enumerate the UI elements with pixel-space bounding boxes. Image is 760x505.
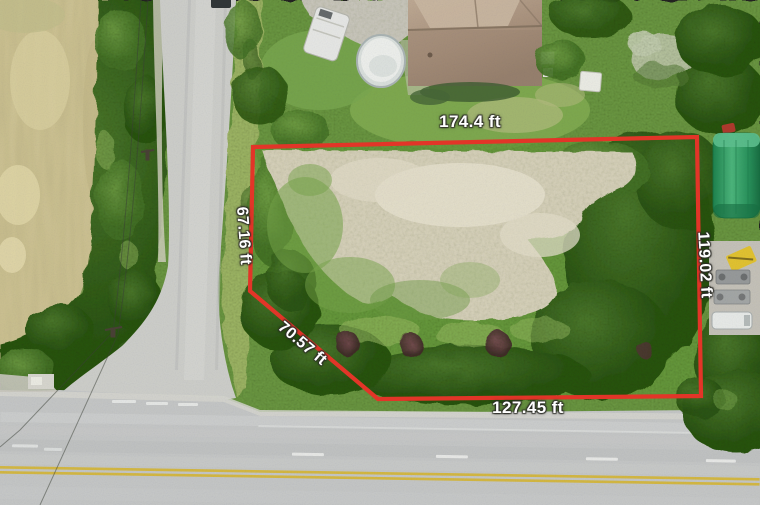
- dimension-label-bottom: 127.45 ft: [492, 398, 564, 418]
- aerial-property-photo: 174.4 ft 67.16 ft 70.57 ft 127.45 ft 119…: [0, 0, 760, 505]
- photo-grain: [0, 0, 760, 505]
- aerial-scene: [0, 0, 760, 505]
- dimension-label-top: 174.4 ft: [439, 112, 501, 132]
- dimension-label-right: 119.02 ft: [693, 231, 714, 299]
